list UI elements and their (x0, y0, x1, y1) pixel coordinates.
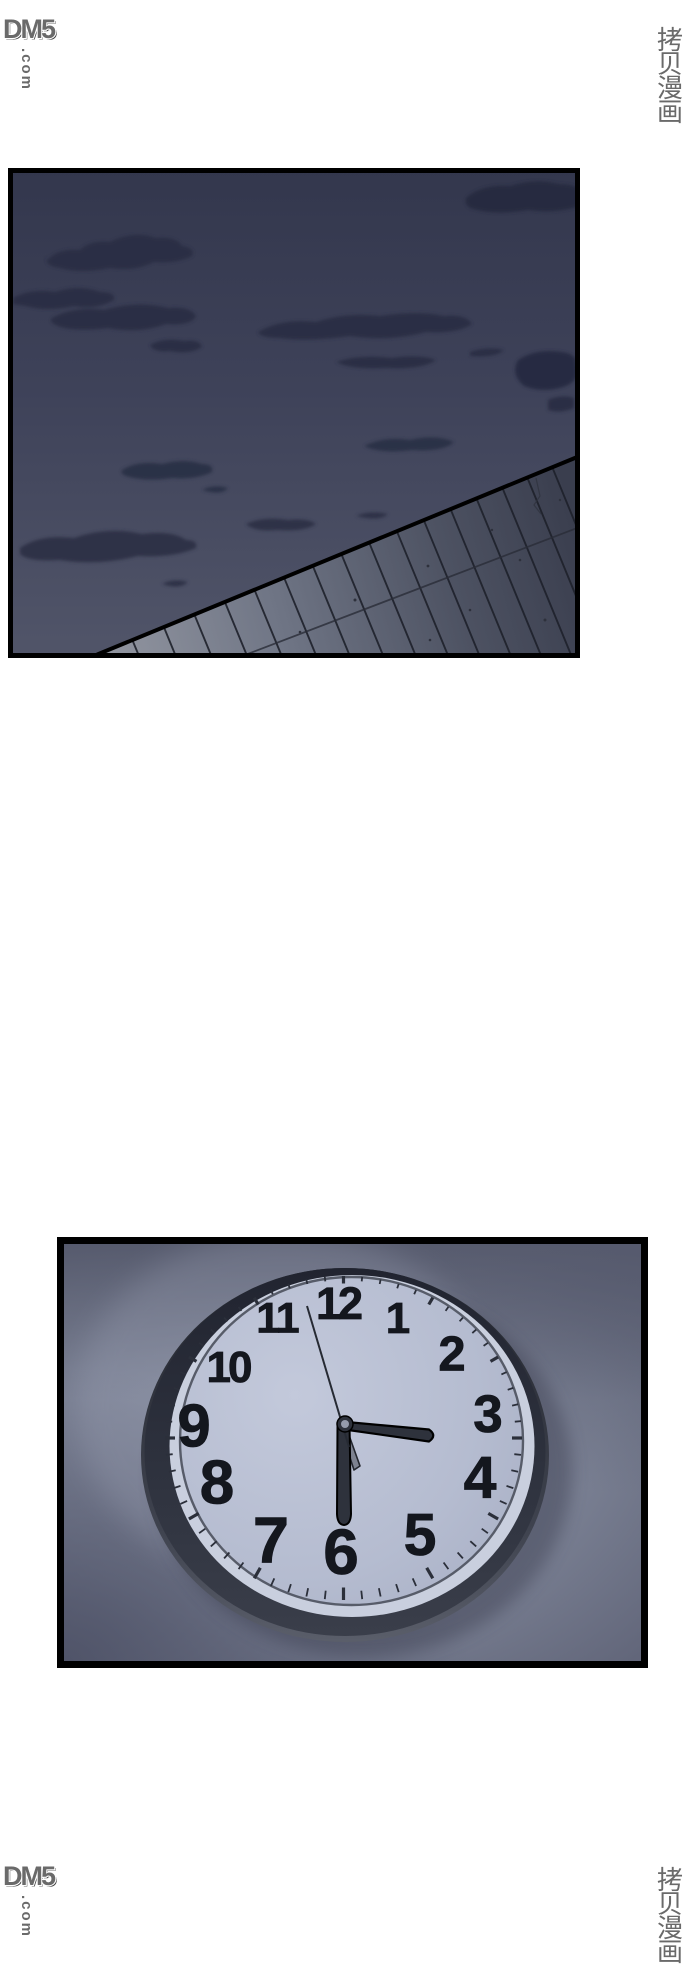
svg-text:5: 5 (404, 1502, 437, 1568)
svg-text:9: 9 (177, 1393, 210, 1460)
svg-text:DM5: DM5 (3, 14, 56, 44)
svg-text:10: 10 (207, 1343, 251, 1392)
svg-text:.com: .com (18, 48, 35, 91)
svg-text:DM5: DM5 (3, 1861, 56, 1891)
svg-text:12: 12 (316, 1278, 362, 1329)
svg-text:画: 画 (657, 97, 683, 127)
svg-text:.com: .com (18, 1895, 35, 1938)
svg-text:11: 11 (256, 1294, 299, 1342)
svg-text:4: 4 (464, 1445, 497, 1511)
svg-text:1: 1 (386, 1294, 410, 1343)
svg-text:3: 3 (473, 1385, 502, 1444)
svg-text:画: 画 (657, 1937, 683, 1965)
svg-text:6: 6 (323, 1516, 359, 1588)
svg-text:7: 7 (253, 1503, 289, 1576)
svg-text:2: 2 (438, 1328, 465, 1382)
